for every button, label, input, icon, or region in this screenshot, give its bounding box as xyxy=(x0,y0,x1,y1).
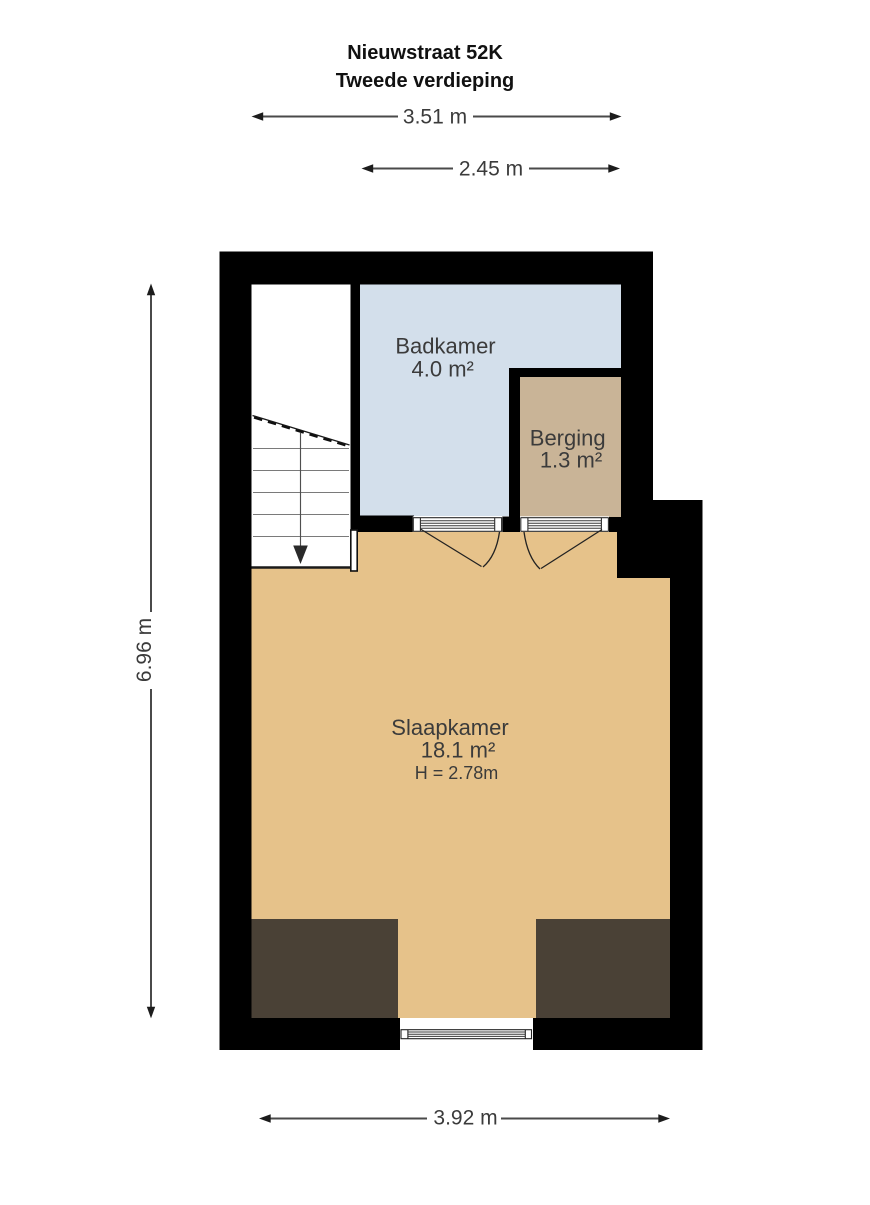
svg-text:Nieuwstraat 52K: Nieuwstraat 52K xyxy=(347,42,503,64)
svg-text:Badkamer: Badkamer xyxy=(395,334,495,359)
svg-text:6.96 m: 6.96 m xyxy=(133,618,156,682)
svg-text:18.1 m²: 18.1 m² xyxy=(421,738,496,763)
svg-text:Tweede verdieping: Tweede verdieping xyxy=(336,70,515,92)
svg-text:2.45 m: 2.45 m xyxy=(459,158,523,181)
svg-text:4.0 m²: 4.0 m² xyxy=(412,357,474,382)
svg-text:Slaapkamer: Slaapkamer xyxy=(391,715,508,740)
svg-text:H = 2.78m: H = 2.78m xyxy=(415,763,499,783)
svg-text:3.51 m: 3.51 m xyxy=(403,106,467,129)
svg-text:3.92 m: 3.92 m xyxy=(433,1107,497,1130)
svg-text:1.3 m²: 1.3 m² xyxy=(540,448,602,473)
